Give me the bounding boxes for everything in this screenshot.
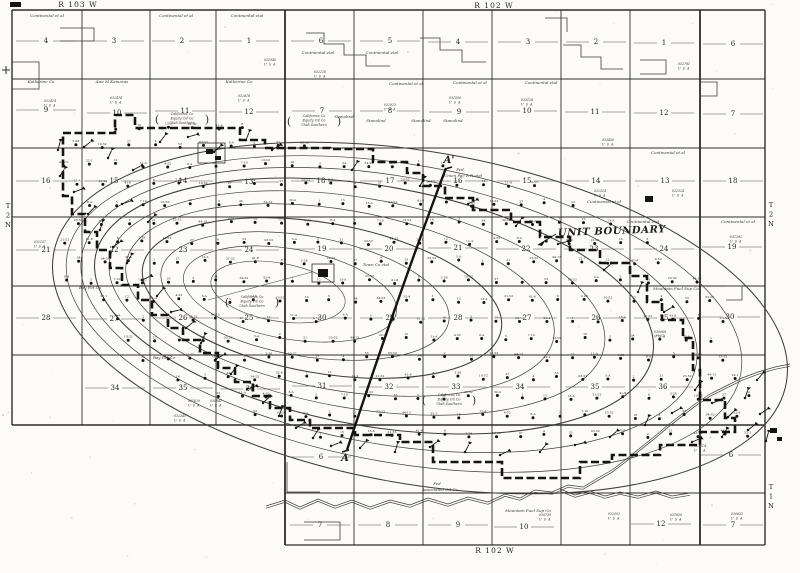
producing-well-symbol [176, 261, 179, 264]
lease-owner-label: Stanolind [366, 118, 386, 123]
producing-well-symbol [340, 241, 343, 244]
scan-speckle [187, 52, 189, 54]
well-number: 7-10 [581, 409, 588, 413]
section-number: 12 [657, 520, 666, 528]
serial-number-label: 032414 [44, 99, 56, 103]
scan-speckle [709, 437, 711, 439]
serial-number-label: 031850 [670, 513, 682, 517]
well-number: 4-52 [304, 219, 311, 223]
producing-well-symbol [255, 338, 258, 341]
producing-well-symbol [470, 319, 473, 322]
producing-well-symbol [521, 396, 524, 399]
well-number: 8 [557, 294, 559, 298]
dry-hole-flag-part [248, 128, 253, 133]
well-number: 2-28 [441, 275, 448, 279]
section-number: 24 [660, 245, 669, 253]
lease-boundary-line [12, 62, 39, 89]
well-number: 5-A [303, 411, 309, 415]
scan-speckle [307, 519, 309, 521]
well-number: 21 [276, 140, 280, 144]
well-number: 5-A [292, 237, 298, 241]
producing-well-symbol [166, 166, 169, 169]
well-number: 16 [290, 160, 294, 164]
lease-owner-label: Fed [455, 167, 464, 172]
section-number: 7 [731, 110, 735, 118]
producing-well-symbol [646, 241, 649, 244]
well-number: 11-A [505, 181, 513, 185]
serial-number-label: 033128 [521, 98, 533, 102]
serial-number-label: 030841 [210, 399, 222, 403]
well-number: 1 [153, 258, 155, 262]
operator-group-label: Equity Oil Co [170, 117, 194, 121]
producing-well-symbol [594, 433, 597, 436]
well-number: 34 [226, 371, 230, 375]
well-number: 41-8 [416, 429, 423, 433]
producing-well-symbol [354, 301, 357, 304]
producing-well-symbol [341, 434, 344, 437]
well-number: 15 [582, 217, 586, 221]
producing-well-symbol [267, 319, 270, 322]
well-number: 13-52 [590, 238, 599, 242]
scan-speckle [604, 554, 606, 555]
producing-well-symbol [217, 395, 220, 398]
well-number: 11-A [239, 391, 247, 395]
well-number: 21-52 [60, 238, 69, 242]
well-number: 8-A [64, 274, 70, 278]
well-number: 3 [204, 373, 206, 377]
producing-well-symbol [443, 280, 446, 283]
producing-well-symbol [507, 298, 510, 301]
bracket-glyph: ) [205, 113, 209, 126]
well-number: 13-52 [605, 411, 614, 415]
section-number: 10 [520, 523, 529, 531]
well-number: 7-10 [341, 392, 348, 396]
producing-well-symbol [419, 203, 422, 206]
well-number: 03-52 [224, 336, 233, 340]
range-label-top-left: R 103 W [58, 0, 97, 9]
scan-speckle [89, 457, 90, 459]
scan-speckle [662, 540, 664, 541]
producing-well-symbol [353, 340, 356, 343]
well-number: 5-A [605, 373, 611, 377]
producing-well-symbol [365, 355, 368, 358]
well-number: 32-4 [733, 411, 740, 415]
serial-usa-label: U S A [731, 516, 743, 520]
range-label-bottom: R 102 W [475, 546, 514, 555]
well-number: 15 [328, 370, 332, 374]
serial-usa-label: U S A [44, 103, 56, 107]
lease-owner-label: Continental et al [159, 13, 194, 18]
creek-line [560, 489, 690, 496]
well-number: 1 [710, 336, 712, 340]
dry-hole-flag-part [186, 322, 192, 329]
well-number: 41-8 [417, 199, 424, 203]
section-number: 32 [385, 383, 394, 391]
producing-well-symbol [343, 397, 346, 400]
well-number: 5 [370, 314, 372, 318]
well-number: 3 [218, 199, 220, 203]
serial-usa-label: U S A [449, 100, 461, 104]
producing-well-symbol [533, 184, 536, 187]
well-number: 15 [141, 355, 145, 359]
well-number: 27 [353, 258, 357, 262]
lease-owner-label: Katherine Co [27, 79, 55, 84]
bracket-glyph: ( [155, 113, 159, 126]
well-number: 15 [543, 393, 547, 397]
operator-group-label: Equity Oil Co [302, 119, 326, 123]
well-number: 15 [317, 278, 321, 282]
well-number: 12 [267, 315, 271, 319]
township-label-t2n-left: T [6, 202, 11, 210]
serial-number-label: 032923 [384, 103, 396, 107]
dry-hole-well-symbol [72, 183, 86, 197]
producing-well-symbol [545, 320, 548, 323]
producing-well-symbol [416, 397, 419, 400]
producing-well-symbol [303, 262, 306, 265]
well-number: 12 [444, 237, 448, 241]
producing-well-symbol [696, 281, 699, 284]
dry-hole-flag-part [106, 151, 113, 158]
producing-well-symbol [330, 260, 333, 263]
well-number: 5 [559, 411, 561, 415]
lease-owner-label: Town Co etal [363, 262, 390, 267]
well-number: 4-52 [617, 353, 624, 357]
producing-well-symbol [127, 143, 130, 146]
well-number: 15 [596, 316, 600, 320]
well-number: 23-52 [401, 177, 410, 181]
producing-well-symbol [116, 281, 119, 284]
scan-speckle [278, 235, 280, 237]
well-number: 21 [152, 218, 156, 222]
section-number: 19 [728, 243, 737, 251]
section-number: 2 [180, 37, 184, 45]
producing-well-symbol [519, 435, 522, 438]
producing-well-symbol [556, 298, 559, 301]
well-number: 5 [116, 200, 118, 204]
producing-well-symbol [582, 221, 585, 224]
well-number: 8 [281, 258, 283, 262]
section-number: 36 [659, 383, 668, 391]
producing-well-symbol [153, 262, 156, 265]
producing-well-symbol [267, 242, 270, 245]
well-number: 21-52 [98, 179, 107, 183]
well-number: 5 [90, 278, 92, 282]
well-number: 12 [482, 179, 486, 183]
producing-well-symbol [114, 162, 117, 165]
producing-well-symbol [243, 165, 246, 168]
lease-owner-label: Stanolind [411, 118, 431, 123]
dry-hole-well-symbol [538, 442, 549, 453]
producing-well-symbol [571, 320, 574, 323]
scan-speckle [22, 324, 23, 325]
scan-speckle [65, 181, 67, 182]
producing-well-symbol [65, 279, 68, 282]
producing-well-symbol [593, 356, 596, 359]
operator-group-label: Utah Southern [301, 123, 326, 127]
serial-number-label: 031282 [730, 235, 742, 239]
operator-group-label: California Co [241, 295, 264, 299]
serial-usa-label: U S A [672, 193, 684, 197]
cross-section-tick [342, 450, 349, 452]
section-number: 1 [662, 39, 666, 47]
well-number: 21-52 [185, 353, 194, 357]
producing-well-symbol [230, 145, 233, 148]
scan-speckle [217, 417, 218, 419]
producing-well-symbol [267, 356, 270, 359]
well-number: 5-A [620, 428, 626, 432]
producing-well-symbol [152, 182, 155, 185]
section-number: 30 [726, 313, 735, 321]
serial-usa-label: U S A [678, 66, 690, 70]
producing-well-symbol [583, 413, 586, 416]
dry-hole-flag-part [521, 216, 525, 220]
well-number: 32-4 [276, 371, 283, 375]
well-number: 2 [279, 332, 281, 336]
scan-speckle [272, 482, 273, 484]
scan-speckle [493, 116, 494, 117]
producing-well-symbol [88, 241, 91, 244]
well-number: 2-28 [720, 316, 727, 320]
well-number: 13-A [201, 255, 209, 259]
well-number: 34-52 [706, 413, 715, 417]
well-number: 12 [216, 391, 220, 395]
producing-well-symbol [517, 356, 520, 359]
producing-well-symbol [583, 298, 586, 301]
producing-well-symbol [404, 182, 407, 185]
dry-hole-well-symbol [573, 436, 588, 451]
serial-usa-label: U S A [730, 239, 742, 243]
producing-well-symbol [141, 281, 144, 284]
well-number: 53 [242, 237, 246, 241]
well-number: 53 [253, 409, 257, 413]
producing-well-symbol [407, 377, 410, 380]
producing-well-symbol [204, 377, 207, 380]
well-number: 11-A [631, 258, 639, 262]
producing-well-symbol [154, 143, 157, 146]
well-number: 34-52 [502, 218, 511, 222]
serial-number-label: 032474 [110, 96, 122, 100]
producing-well-symbol [140, 239, 143, 242]
well-number: 23-52 [683, 374, 692, 378]
producing-well-symbol [444, 241, 447, 244]
well-number: 1 [291, 276, 293, 280]
producing-well-symbol [634, 417, 637, 420]
scan-speckle [189, 348, 191, 349]
well-number: 53 [685, 296, 689, 300]
serial-number-label: 031940 [264, 58, 276, 62]
serial-usa-label: U S A [264, 62, 276, 66]
well-number: 32-4 [263, 275, 270, 279]
well-number: 11-A [290, 313, 298, 317]
producing-well-symbol [316, 241, 319, 244]
scan-speckle [370, 62, 371, 63]
section-number: 16 [42, 177, 51, 185]
dry-hole-flag-part [500, 449, 507, 457]
well-number: 23-52 [364, 239, 373, 243]
producing-well-symbol [430, 222, 433, 225]
producing-well-symbol [432, 375, 435, 378]
producing-well-symbol [142, 319, 145, 322]
producing-well-symbol [128, 222, 131, 225]
producing-well-symbol [88, 163, 91, 166]
producing-well-symbol [584, 336, 587, 339]
well-number: 2-28 [72, 139, 79, 143]
scan-speckle [195, 449, 196, 450]
section-number: 7 [318, 521, 322, 529]
producing-well-symbol [293, 241, 296, 244]
producing-well-symbol [214, 317, 217, 320]
unit-boundary-label: UNIT BOUNDARY [558, 224, 667, 239]
dry-hole-flag-part [640, 280, 645, 285]
well-number: 16 [430, 218, 434, 222]
dry-hole-flag-part [360, 442, 366, 448]
well-number: 4-52 [164, 161, 171, 165]
well-number: 8-A [202, 294, 208, 298]
well-number: 13-A [366, 201, 374, 205]
scan-speckle [381, 279, 383, 280]
bracket-glyph: ( [287, 115, 291, 128]
well-number: 4 [178, 334, 180, 338]
scan-speckle [734, 133, 736, 134]
producing-well-symbol [467, 435, 470, 438]
well-number: 10-52 [288, 352, 297, 356]
producing-well-symbol [216, 242, 219, 245]
well-number: 23-52 [668, 276, 677, 280]
serial-number-label: 033456 [602, 138, 614, 142]
dry-hole-flag-part [672, 407, 679, 414]
producing-well-symbol [606, 262, 609, 265]
producing-well-symbol [572, 204, 575, 207]
producing-well-symbol [504, 338, 507, 341]
dry-hole-flag-part [120, 239, 125, 243]
well-number: 1 [306, 371, 308, 375]
producing-well-symbol [532, 416, 535, 419]
well-number: 2 [482, 258, 484, 262]
well-number: 03-52 [568, 277, 577, 281]
well-number: 34-52 [250, 374, 259, 378]
serial-usa-label: U S A [188, 403, 200, 407]
scan-speckle [702, 143, 703, 144]
well-number: 21 [353, 411, 357, 415]
well-number: 12 [571, 352, 575, 356]
scan-speckle [656, 563, 657, 564]
operator-group-label: Utah Southern [169, 121, 194, 125]
well-number: 27 [228, 181, 232, 185]
producing-well-symbol [432, 339, 435, 342]
well-number: 53 [279, 179, 283, 183]
well-number: 11-A [479, 409, 487, 413]
range-label-top-right: R 102 W [474, 1, 513, 10]
section-number: 9 [457, 108, 461, 116]
well-number: 34-52 [239, 276, 248, 280]
well-number: 3 [192, 276, 194, 280]
producing-well-symbol [391, 165, 394, 168]
well-number: 4 [342, 354, 344, 358]
scan-speckle [169, 201, 170, 203]
well-number: 23-52 [376, 410, 385, 414]
producing-well-symbol [571, 356, 574, 359]
lease-owner-label: Katherine Co [225, 79, 253, 84]
map-sheet: 4321910111216151413212223242827262534353… [0, 0, 800, 573]
scan-speckle [773, 88, 774, 89]
well-number: 5-A [254, 334, 260, 338]
well-number: 44-13 [198, 220, 207, 224]
well-number: 3 [470, 315, 472, 319]
bracket-glyph: ( [225, 296, 229, 309]
producing-well-symbol [290, 394, 293, 397]
well-number: 3 [328, 294, 330, 298]
serial-number-label: 030739 [539, 513, 551, 517]
producing-well-symbol [152, 222, 155, 225]
producing-well-symbol [354, 185, 357, 188]
serial-number-label: 030968 [654, 330, 666, 334]
section-number: 4 [44, 37, 49, 45]
well-number: 4 [155, 139, 157, 143]
producing-well-symbol [609, 223, 612, 226]
producing-well-symbol [367, 165, 370, 168]
dry-hole-flag-part [188, 132, 196, 140]
section-number: 18 [729, 177, 738, 185]
producing-well-symbol [542, 433, 545, 436]
producing-well-symbol [495, 281, 498, 284]
producing-well-symbol [254, 413, 257, 416]
well-number: 21-52 [643, 314, 652, 318]
producing-well-symbol [189, 202, 192, 205]
dry-hole-flag-part [223, 352, 228, 357]
well-number: 21 [339, 237, 343, 241]
cross-section-end-label: A [340, 453, 349, 464]
operator-group-label: Equity Oil Co [437, 398, 461, 402]
well-number: 21-52 [504, 294, 513, 298]
producing-well-symbol [647, 359, 650, 362]
lease-boundary-line [60, 28, 94, 41]
producing-well-symbol [280, 183, 283, 186]
well-number: 27 [722, 393, 726, 397]
serial-usa-label: U S A [238, 98, 250, 102]
scan-speckle [275, 176, 277, 178]
producing-well-symbol [254, 260, 257, 263]
producing-well-symbol [621, 432, 624, 435]
scan-speckle [51, 373, 52, 374]
well-number: 4-52 [313, 316, 320, 320]
section-number: 22 [522, 245, 531, 253]
well-number: 44-13 [390, 237, 399, 241]
serial-number-label: 030633 [731, 512, 743, 516]
producing-well-symbol [697, 317, 700, 320]
producing-well-symbol [291, 164, 294, 167]
scan-speckle [71, 517, 73, 518]
well-number: 13-52 [552, 336, 561, 340]
dry-hole-flag-part [437, 439, 442, 443]
producing-well-symbol [304, 415, 307, 418]
well-number: 2 [444, 351, 446, 355]
scan-speckle [225, 26, 226, 28]
producing-well-symbol [104, 260, 107, 263]
producing-well-symbol [192, 280, 195, 283]
producing-well-symbol [518, 320, 521, 323]
producing-well-symbol [456, 375, 459, 378]
scan-speckle [497, 263, 498, 264]
lease-boundary-line [726, 286, 742, 300]
producing-well-symbol [305, 375, 308, 378]
producing-well-symbol [344, 317, 347, 320]
well-number: 53 [404, 258, 408, 262]
producing-well-symbol [315, 320, 318, 323]
well-number: 10-52 [489, 199, 498, 203]
section-number: 10 [523, 107, 532, 115]
producing-well-symbol [482, 378, 485, 381]
producing-well-symbol [316, 359, 319, 362]
